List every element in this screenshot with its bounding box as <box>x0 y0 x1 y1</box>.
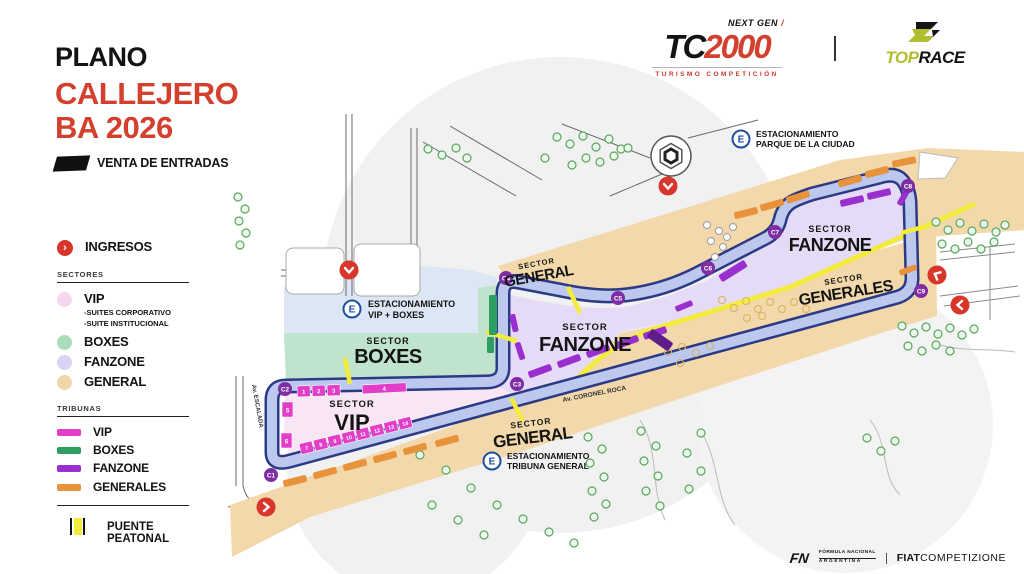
svg-text:FANZONE: FANZONE <box>789 235 872 255</box>
fanzone-sector-swatch <box>57 355 72 370</box>
title-block: PLANO CALLEJERO BA 2026 VENTA DE ENTRADA… <box>55 44 238 171</box>
poster-canvas: 1 2 3 4 5 6 7 8 9 10 11 12 13 14 <box>0 0 1024 574</box>
fanzone-tribuna-swatch <box>57 465 81 472</box>
dome-landmark-icon <box>651 136 691 176</box>
ingreso-legend-icon: › <box>57 240 73 256</box>
tc2000-wordmark-2000: 2000 <box>704 28 769 65</box>
tickets-swoosh-icon <box>53 155 91 171</box>
vip-tribuna-label: VIP <box>93 426 112 439</box>
svg-text:ESTACIONAMIENTO: ESTACIONAMIENTO <box>507 451 590 461</box>
generales-tribuna-label: GENERALES <box>93 481 166 494</box>
fiat-label: FIAT <box>897 552 920 564</box>
fanzone-sector-label: FANZONE <box>84 355 145 369</box>
toprace-logo: TOPRACE <box>866 20 984 66</box>
tc2000-subtitle: TURISMO COMPETICIÓN <box>652 67 782 79</box>
puente-label: PUENTE PEATONAL <box>107 521 203 545</box>
legend-puente: PUENTE PEATONAL <box>57 518 203 545</box>
logo-divider <box>834 36 836 61</box>
svg-text:ESTACIONAMIENTO: ESTACIONAMIENTO <box>368 299 455 309</box>
legend-tribuna-fanzone: FANZONE <box>57 462 203 475</box>
ingresos-label: INGRESOS <box>85 240 152 254</box>
argentina-label: ARGENTINA <box>819 560 876 565</box>
svg-text:C9: C9 <box>917 288 926 295</box>
legend-ingresos: › INGRESOS <box>57 240 203 256</box>
legend-divider <box>57 505 189 506</box>
svg-text:E: E <box>349 304 356 315</box>
tc2000-logo: NEXT GEN / TC2000 TURISMO COMPETICIÓN <box>642 19 792 79</box>
parking-icon: E <box>484 453 501 470</box>
vip-sector-swatch <box>57 292 72 307</box>
legend-sector-general: GENERAL <box>57 375 203 390</box>
nextgen-slash: / <box>781 18 784 28</box>
ingreso-marker-icon <box>340 261 359 280</box>
svg-text:C7: C7 <box>771 229 780 236</box>
legend-tribuna-vip: VIP <box>57 426 203 439</box>
boxes-tribuna-swatch <box>57 447 81 454</box>
svg-text:E: E <box>489 456 496 467</box>
svg-text:BOXES: BOXES <box>354 346 422 368</box>
svg-text:SECTOR: SECTOR <box>366 336 409 346</box>
svg-text:SECTOR: SECTOR <box>562 322 607 333</box>
svg-text:ESTACIONAMIENTO: ESTACIONAMIENTO <box>756 129 839 139</box>
svg-text:TRIBUNA GENERAL: TRIBUNA GENERAL <box>507 461 589 471</box>
svg-text:C1: C1 <box>267 472 276 479</box>
parking-icon: E <box>344 301 361 318</box>
fanzone-tribuna-label: FANZONE <box>93 462 149 475</box>
legend-sector-boxes: BOXES <box>57 335 203 350</box>
legend-sector-fanzone: FANZONE <box>57 355 203 370</box>
legend-tribuna-boxes: BOXES <box>57 444 203 457</box>
parking-icon: E <box>733 131 750 148</box>
legend-tribuna-generales: GENERALES <box>57 481 203 494</box>
svg-text:E: E <box>738 134 745 145</box>
svg-text:C6: C6 <box>704 265 713 272</box>
fn-logo: FN <box>789 550 810 566</box>
toprace-wordmark-race: RACE <box>918 48 964 67</box>
nextgen-label: NEXT GEN <box>728 18 778 28</box>
footer-logos: FN FÓRMULA NACIONAL ARGENTINA FIATCOMPET… <box>790 550 1006 566</box>
street-label-escalada: Av. ESCALADA <box>250 384 264 429</box>
legend: › INGRESOS SECTORES VIP -SUITES CORPORAT… <box>57 240 203 550</box>
tickets-label: VENTA DE ENTRADAS <box>97 157 228 170</box>
svg-text:SECTOR: SECTOR <box>329 399 374 410</box>
footer-divider <box>886 553 887 564</box>
svg-text:FANZONE: FANZONE <box>539 334 631 356</box>
boxes-sector-label: BOXES <box>84 335 129 349</box>
competizione-label: COMPETIZIONE <box>920 552 1006 564</box>
svg-text:PARQUE DE LA CIUDAD: PARQUE DE LA CIUDAD <box>756 139 855 149</box>
sector-label-vip: SECTOR VIP <box>329 399 374 435</box>
boxes-tribuna-label: BOXES <box>93 444 134 457</box>
ingreso-marker-icon <box>257 498 276 517</box>
page-title-line3: BA 2026 <box>55 112 238 143</box>
svg-text:C8: C8 <box>904 183 913 190</box>
svg-text:C5: C5 <box>614 295 623 302</box>
legend-sector-vip: VIP -SUITES CORPORATIVO -SUITE INSTITUCI… <box>57 292 203 330</box>
ingreso-marker-icon <box>951 296 970 315</box>
general-sector-label: GENERAL <box>84 375 146 389</box>
page-title-line2: CALLEJERO <box>55 78 238 109</box>
vip-sector-note2: -SUITE INSTITUCIONAL <box>84 319 171 330</box>
page-title: PLANO <box>55 44 238 71</box>
toprace-mark-icon <box>902 20 948 44</box>
formula-nacional-label: FÓRMULA NACIONAL <box>819 551 876 558</box>
boxes-sector-swatch <box>57 335 72 350</box>
tribunas-title: TRIBUNAS <box>57 404 189 417</box>
vip-tribuna-swatch <box>57 429 81 436</box>
vip-sector-note1: -SUITES CORPORATIVO <box>84 308 171 319</box>
toprace-wordmark-top: TOP <box>885 48 918 67</box>
ingreso-marker-icon <box>659 177 678 196</box>
svg-text:SECTOR: SECTOR <box>808 224 851 234</box>
sectores-title: SECTORES <box>57 270 189 283</box>
general-sector-swatch <box>57 375 72 390</box>
vip-sector-label: VIP <box>84 292 171 306</box>
generales-tribuna-swatch <box>57 484 81 491</box>
svg-text:C3: C3 <box>513 381 522 388</box>
tc2000-wordmark-tc: TC <box>664 28 704 65</box>
svg-text:C2: C2 <box>281 386 290 393</box>
puente-peatonal-icon <box>70 518 85 535</box>
svg-text:VIP: VIP <box>334 410 369 435</box>
svg-text:VIP + BOXES: VIP + BOXES <box>368 310 424 320</box>
